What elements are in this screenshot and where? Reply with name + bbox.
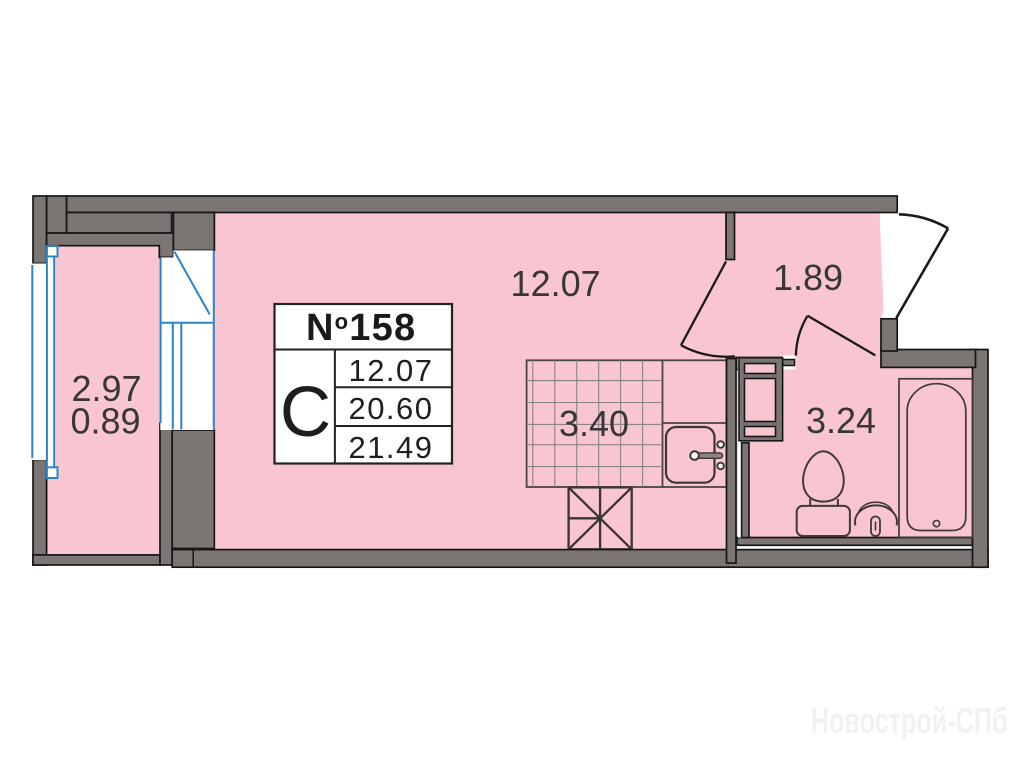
svg-text:12.07: 12.07 [348, 353, 433, 388]
svg-text:12.07: 12.07 [511, 263, 601, 304]
svg-text:No158: No158 [306, 307, 416, 349]
svg-text:20.60: 20.60 [348, 391, 433, 426]
svg-text:3.40: 3.40 [559, 403, 629, 444]
svg-text:3.24: 3.24 [806, 400, 876, 441]
svg-text:21.49: 21.49 [348, 430, 433, 465]
svg-text:1.89: 1.89 [773, 257, 843, 298]
svg-text:С: С [280, 373, 331, 452]
svg-text:Новострой-СПб: Новострой-СПб [811, 701, 1008, 742]
svg-text:0.89: 0.89 [70, 401, 140, 442]
